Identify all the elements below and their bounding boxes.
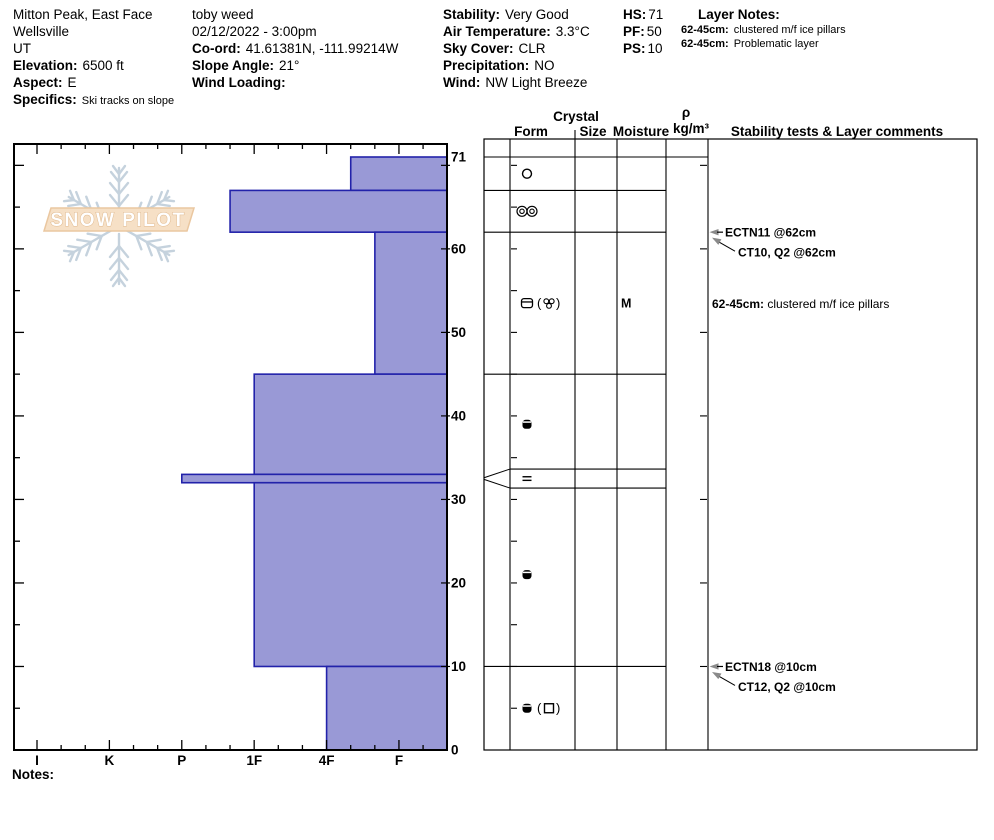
layer-bar — [375, 232, 447, 374]
depth-tick-label: 20 — [451, 575, 466, 590]
depth-tick-label: 30 — [451, 492, 466, 507]
grain-form-symbol-melt-dot — [523, 420, 532, 429]
depth-tick-label: 50 — [451, 325, 466, 340]
paren: ) — [556, 701, 560, 716]
layer-comment: 62-45cm: clustered m/f ice pillars — [712, 297, 889, 311]
paren: ( — [537, 701, 542, 716]
depth-tick-label: 71 — [451, 150, 467, 165]
grain-form-symbol-melt-dot — [523, 570, 532, 579]
test-label: ECTN11 @62cm — [725, 226, 816, 240]
paren: ( — [537, 296, 542, 311]
arrow-icon — [710, 669, 721, 679]
layer-table-grid — [484, 130, 977, 750]
arrow-icon — [710, 235, 721, 245]
test-label: ECTN18 @10cm — [725, 660, 817, 674]
grain-form-symbol-melt-dot — [523, 704, 532, 713]
hardness-bars — [182, 157, 447, 750]
hardness-tick-label: 4F — [319, 753, 335, 768]
col-header-density-rho: ρ — [682, 105, 690, 120]
col-header-density-unit: kg/m³ — [673, 121, 710, 136]
notes-label: Notes: — [12, 767, 54, 782]
stability-test: ECTN18 @10cm — [710, 660, 817, 674]
hardness-tick-label: K — [105, 753, 115, 768]
col-header-size: Size — [579, 124, 607, 139]
snowpilot-logo: SNOW PILOT — [44, 166, 194, 286]
col-header-crystal: Crystal — [553, 109, 599, 124]
test-label: CT10, Q2 @62cm — [738, 246, 836, 260]
stability-test-annotations: ECTN11 @62cmCT10, Q2 @62cmECTN18 @10cmCT… — [710, 226, 836, 694]
layer-bar — [327, 666, 447, 750]
grain-form-symbol-square-open — [545, 704, 554, 713]
depth-tick-label: 60 — [451, 241, 466, 256]
grain-form-symbol-double-circle-pair — [517, 206, 537, 216]
grain-form-symbol-ice-lens — [523, 477, 532, 481]
test-label: CT12, Q2 @10cm — [738, 680, 836, 694]
col-header-moisture: Moisture — [613, 124, 670, 139]
hardness-tick-label: P — [177, 753, 186, 768]
col-header-comments: Stability tests & Layer comments — [731, 124, 943, 139]
layer-bar — [182, 474, 447, 482]
layer-bar — [351, 157, 447, 190]
paren: ) — [556, 296, 560, 311]
moisture-value: M — [621, 297, 631, 311]
snowpilot-profile-page: Mitton Peak, East FaceWellsvilleUTElevat… — [0, 0, 994, 840]
hardness-tick-label: I — [35, 753, 39, 768]
grain-form-symbol-circle-open — [523, 169, 532, 178]
depth-tick-label: 10 — [451, 659, 466, 674]
logo-text: SNOW PILOT — [50, 210, 185, 231]
snow-profile-graph: SNOW PILOT IKP1F4FF716050403020100 ()M62… — [0, 0, 994, 840]
col-header-form: Form — [514, 124, 548, 139]
depth-tick-label: 40 — [451, 408, 466, 423]
layer-bar — [254, 374, 447, 474]
grain-form-symbol-cluster — [544, 299, 554, 308]
layer-bar — [254, 483, 447, 667]
grain-form-symbol-crust — [522, 299, 533, 308]
layer-bar — [230, 190, 447, 232]
depth-tick-label: 0 — [451, 743, 459, 758]
stability-test: ECTN11 @62cm — [710, 226, 817, 240]
hardness-tick-label: F — [395, 753, 403, 768]
snowflake-arm — [110, 234, 128, 286]
hardness-tick-label: 1F — [246, 753, 262, 768]
